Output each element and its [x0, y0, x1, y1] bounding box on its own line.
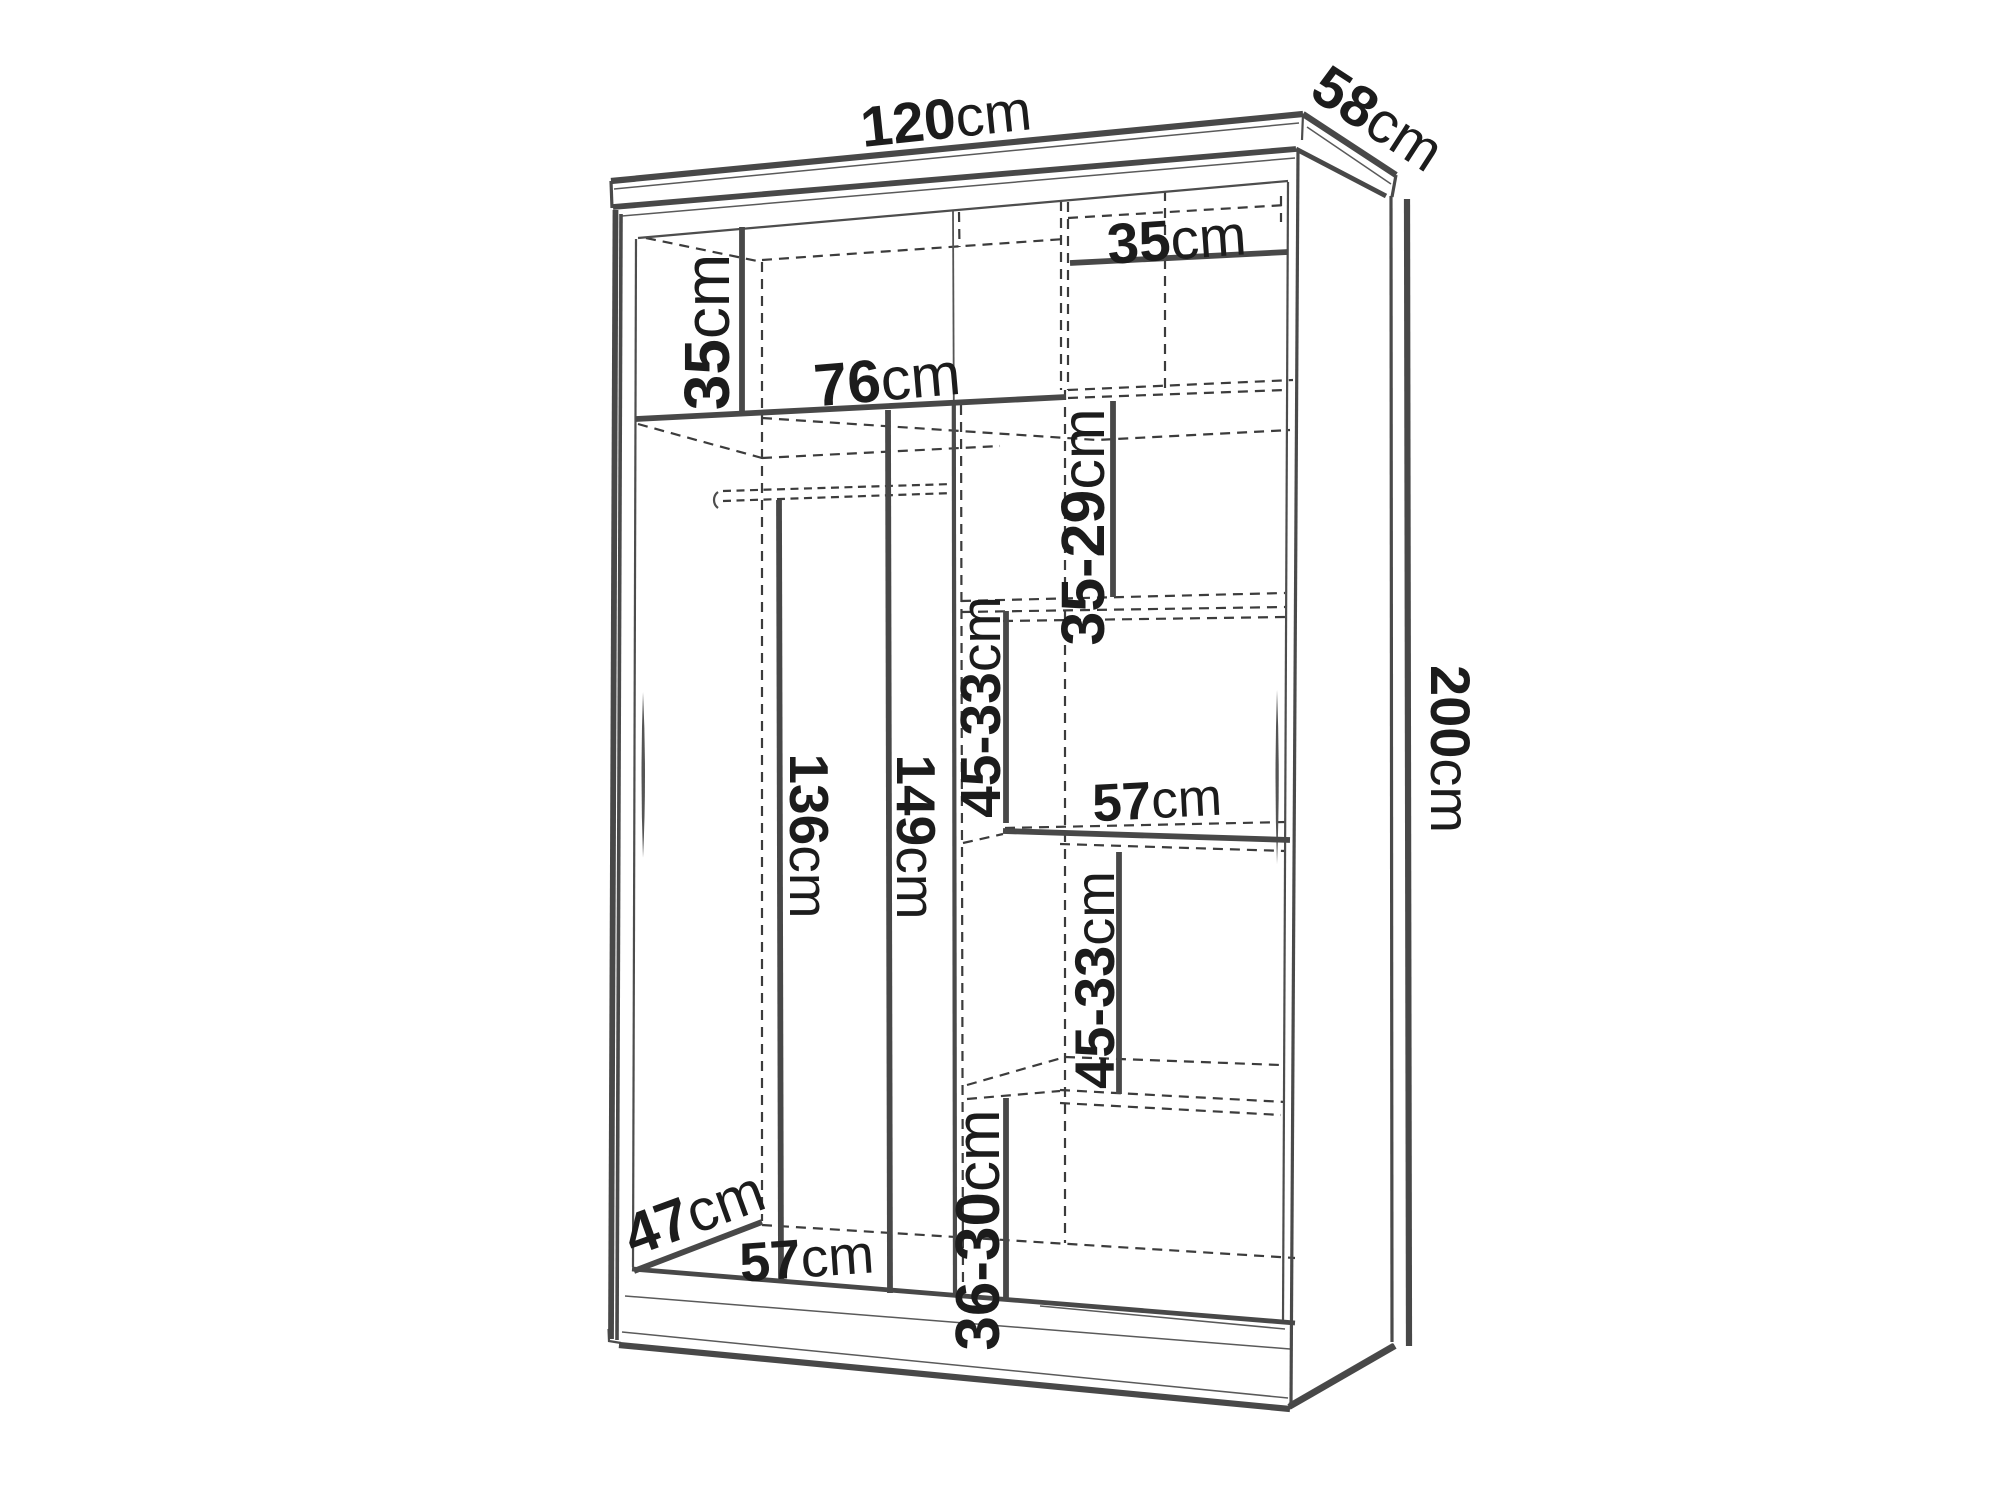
svg-text:57cm: 57cm [1091, 768, 1224, 834]
svg-text:35-29cm: 35-29cm [1049, 408, 1117, 645]
svg-text:35cm: 35cm [671, 254, 743, 411]
svg-text:200cm: 200cm [1419, 665, 1482, 833]
svg-text:35cm: 35cm [1105, 203, 1249, 277]
svg-text:57cm: 57cm [737, 1222, 876, 1293]
svg-text:45-33cm: 45-33cm [949, 596, 1013, 818]
svg-text:36-30cm: 36-30cm [944, 1109, 1013, 1350]
svg-text:136cm: 136cm [778, 753, 840, 918]
svg-text:149cm: 149cm [885, 754, 947, 919]
svg-text:45-33cm: 45-33cm [1063, 871, 1126, 1089]
svg-text:76cm: 76cm [811, 340, 963, 420]
